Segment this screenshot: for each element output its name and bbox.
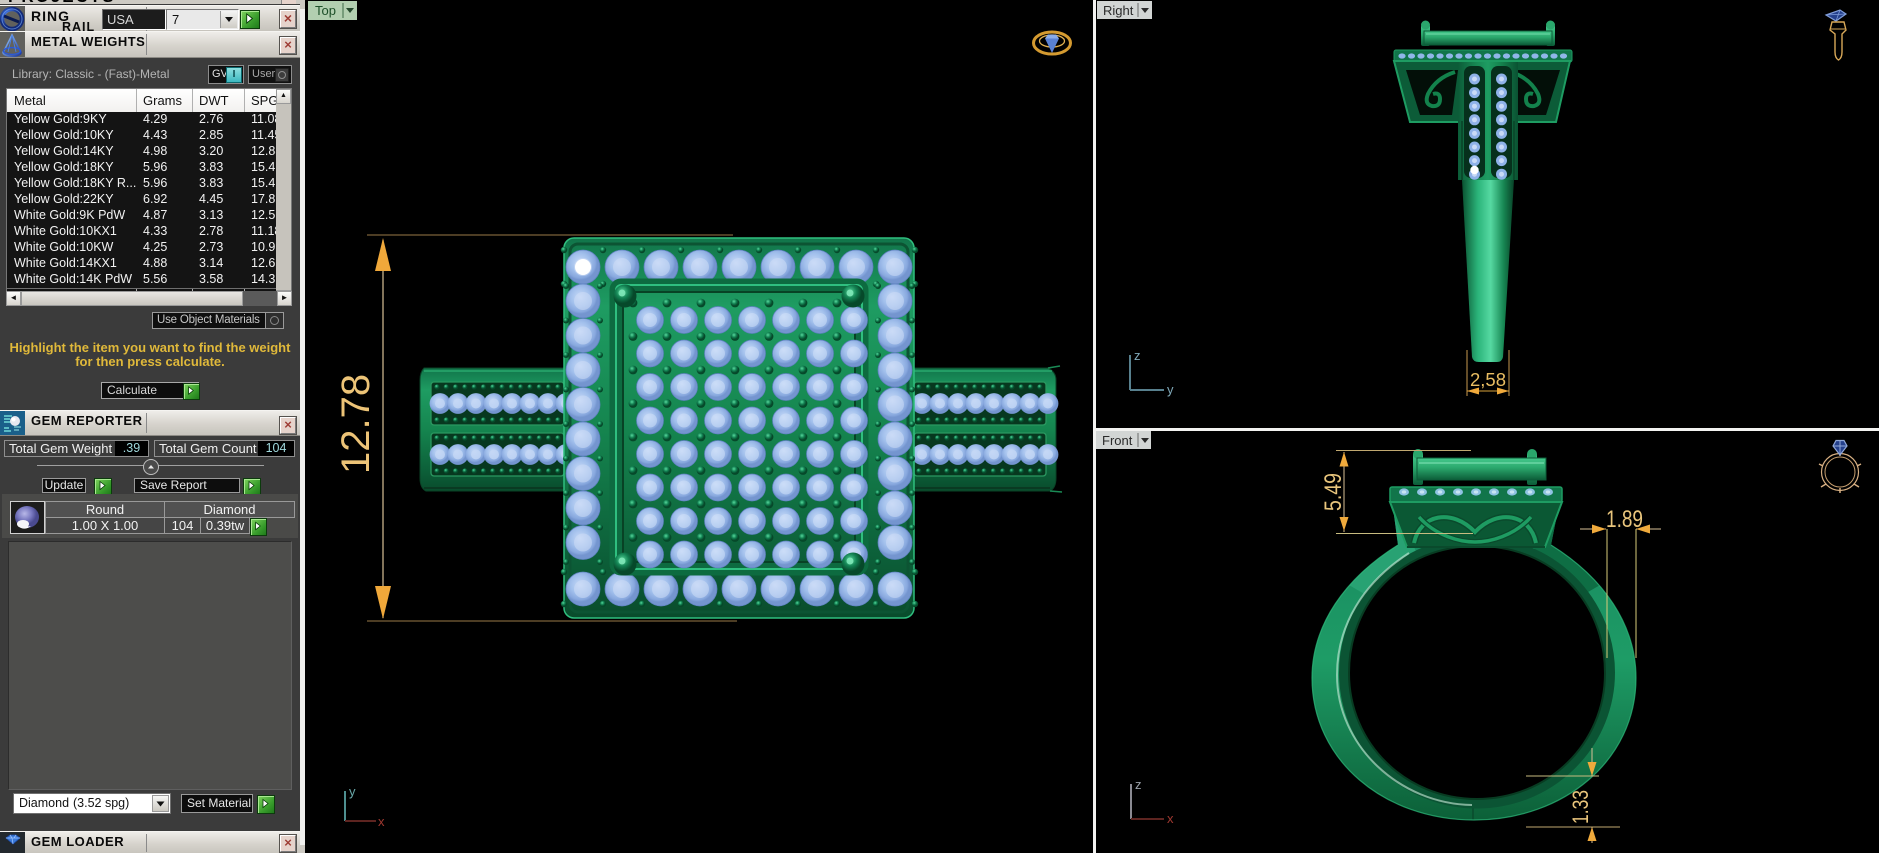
svg-text:z: z [1134, 348, 1141, 363]
svg-text:Front: Front [1102, 433, 1133, 448]
svg-text:x: x [1167, 811, 1174, 826]
svg-text:1.33: 1.33 [1568, 790, 1593, 824]
svg-text:Top: Top [315, 3, 336, 18]
svg-text:5.49: 5.49 [1320, 473, 1347, 511]
svg-text:12.78: 12.78 [334, 374, 378, 474]
svg-text:z: z [1135, 777, 1142, 792]
svg-text:2,58: 2,58 [1470, 370, 1506, 390]
svg-text:y: y [1167, 382, 1174, 397]
svg-text:Right: Right [1103, 3, 1134, 18]
svg-text:x: x [378, 814, 385, 829]
svg-text:y: y [349, 784, 356, 799]
